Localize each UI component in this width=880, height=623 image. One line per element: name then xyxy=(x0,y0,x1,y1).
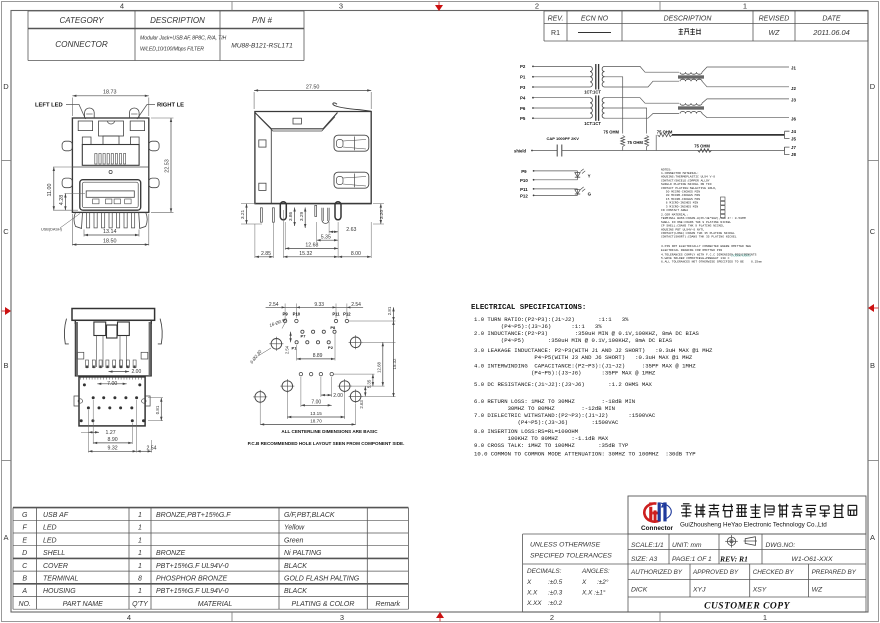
svg-text:P4~P5(WITH J3 AND J6 SHORT): P4~P5(WITH J3 AND J6 SHORT) :0.3uH MAX @… xyxy=(474,354,693,361)
svg-text:2: 2 xyxy=(535,2,539,11)
svg-text:NOTES:: NOTES: xyxy=(661,168,672,171)
svg-text:P9: P9 xyxy=(283,311,289,316)
svg-text:6-Ø2.30: 6-Ø2.30 xyxy=(249,349,263,365)
svg-text:(P4~P5):(J3~J6) :1:1 3%: (P4~P5):(J3~J6) :1:1 3% xyxy=(474,323,602,330)
svg-text:P3: P3 xyxy=(520,85,526,90)
svg-text:W/LED,10/100/Mbps FILTER: W/LED,10/100/Mbps FILTER xyxy=(140,47,204,53)
svg-text:9.33: 9.33 xyxy=(314,302,324,308)
svg-text:1: 1 xyxy=(763,613,767,622)
svg-text::±0.5: :±0.5 xyxy=(548,579,563,586)
svg-text:7.00: 7.00 xyxy=(311,399,321,405)
svg-text:X.X: X.X xyxy=(526,590,538,597)
svg-text::±0.3: :±0.3 xyxy=(548,590,563,597)
svg-text:G: G xyxy=(22,512,28,519)
svg-text:18.73: 18.73 xyxy=(103,90,117,96)
svg-text:2.54: 2.54 xyxy=(269,302,279,308)
svg-text:2011.06.04: 2011.06.04 xyxy=(812,28,849,37)
svg-text:16-Ø0.90: 16-Ø0.90 xyxy=(269,317,288,328)
svg-text:J1: J1 xyxy=(791,66,796,71)
svg-text:COVER: COVER xyxy=(43,563,68,570)
svg-text:CONTACT PLATING:SELECTIVE GOLD: CONTACT PLATING:SELECTIVE GOLD, xyxy=(661,187,717,190)
svg-text:D: D xyxy=(22,550,27,557)
svg-text:ANGLES:: ANGLES: xyxy=(581,568,610,575)
svg-text:8.89: 8.89 xyxy=(313,353,323,359)
svg-text:P9: P9 xyxy=(521,169,527,174)
svg-text:Y: Y xyxy=(588,174,591,179)
svg-text:2: 2 xyxy=(550,613,554,622)
svg-text:SHELL IN ONE:COANS THK 9 PLATI: SHELL IN ONE:COANS THK 9 PLATING NICKEL xyxy=(661,221,731,224)
svg-text:R1: R1 xyxy=(551,30,560,37)
svg-text:IN CONTACT AREA: IN CONTACT AREA xyxy=(661,209,688,212)
svg-text:3.20: 3.20 xyxy=(379,210,385,220)
svg-text:12.68: 12.68 xyxy=(305,243,318,249)
svg-text:ELECTRICAL SPECIFICATIONS:: ELECTRICAL SPECIFICATIONS: xyxy=(471,304,586,312)
svg-text:13.15: 13.15 xyxy=(310,411,322,416)
svg-text:9.32: 9.32 xyxy=(108,445,118,451)
svg-text:1.0 TURN RATIO:(P2~P3):(J1~J2): 1.0 TURN RATIO:(P2~P3):(J1~J2) :1:1 3% xyxy=(474,316,629,323)
svg-text:CAP 1000PF 2KV: CAP 1000PF 2KV xyxy=(547,136,580,141)
svg-text:12.68: 12.68 xyxy=(377,361,382,373)
svg-text:B: B xyxy=(22,576,27,583)
svg-text:P2: P2 xyxy=(520,64,526,69)
svg-text:USB(DASH): USB(DASH) xyxy=(41,228,63,232)
svg-text:J3: J3 xyxy=(791,98,796,103)
svg-text:P10: P10 xyxy=(520,178,528,183)
svg-text:SHIELD PLATING:NICKEL ON TIN: SHIELD PLATING:NICKEL ON TIN xyxy=(661,183,712,186)
svg-text:PHOSPHOR BRONZE: PHOSPHOR BRONZE xyxy=(156,576,228,583)
svg-text:CATEGORY: CATEGORY xyxy=(59,16,104,25)
svg-text:B: B xyxy=(870,361,875,370)
svg-text:1CT:1CT: 1CT:1CT xyxy=(584,121,601,126)
svg-text:3.0 LEAKAGE INDUCTANCE: P2~P3(: 3.0 LEAKAGE INDUCTANCE: P2~P3(WITH J1 AN… xyxy=(474,347,713,354)
svg-text:4: 4 xyxy=(120,2,124,11)
svg-text:75 OHM: 75 OHM xyxy=(694,144,710,149)
svg-text:P11: P11 xyxy=(520,187,528,192)
svg-text:BRONZE,PBT+15%G.F: BRONZE,PBT+15%G.F xyxy=(156,512,231,519)
svg-text:LEFT LED: LEFT LED xyxy=(35,103,63,109)
svg-text:75 OHM: 75 OHM xyxy=(627,140,643,145)
svg-text:Connector: Connector xyxy=(641,525,673,532)
svg-text:WZ: WZ xyxy=(812,587,823,594)
svg-text:APPROVED BY: APPROVED BY xyxy=(692,569,739,576)
svg-text:2.54: 2.54 xyxy=(351,302,361,308)
svg-text:J8: J8 xyxy=(791,152,796,157)
svg-text:PBT+15%G.F UL94V-0: PBT+15%G.F UL94V-0 xyxy=(156,563,229,570)
svg-text:4.28: 4.28 xyxy=(59,195,65,206)
svg-text:1: 1 xyxy=(138,525,142,532)
svg-text:HOUSING PBT UL94V-0 NYTL: HOUSING PBT UL94V-0 NYTL xyxy=(661,228,704,231)
svg-text:X: X xyxy=(526,579,532,586)
svg-text:DECIMALS:: DECIMALS: xyxy=(527,568,562,575)
svg-text:P12: P12 xyxy=(343,311,351,316)
svg-text:LED: LED xyxy=(43,525,57,532)
svg-text:5.35: 5.35 xyxy=(321,234,331,240)
svg-text:18.50: 18.50 xyxy=(103,238,117,244)
svg-text:50 MICRO-INCHES MIN: 50 MICRO-INCHES MIN xyxy=(666,191,700,194)
svg-text:2.63: 2.63 xyxy=(346,227,356,233)
svg-text:Ni PALTING: Ni PALTING xyxy=(284,550,322,557)
svg-text:P5: P5 xyxy=(520,116,526,121)
svg-text:J4: J4 xyxy=(791,129,796,134)
svg-text:2.COR MATERIAL:: 2.COR MATERIAL: xyxy=(661,214,688,217)
svg-text:4.0 INTERWINDING CAPACITANCE:: 4.0 INTERWINDING CAPACITANCE:(P2~P3):(J1… xyxy=(474,363,696,370)
svg-text:1: 1 xyxy=(138,512,142,519)
svg-text:MU88-B121-RSL1T1: MU88-B121-RSL1T1 xyxy=(231,43,293,50)
svg-text:1: 1 xyxy=(743,2,747,11)
svg-text:J6: J6 xyxy=(791,117,796,122)
svg-text:D: D xyxy=(3,82,9,91)
svg-text:C: C xyxy=(3,227,9,236)
svg-text:P10: P10 xyxy=(293,311,301,316)
svg-text:DESCRIPTION: DESCRIPTION xyxy=(664,16,713,23)
svg-text:2.00: 2.00 xyxy=(132,369,142,375)
svg-text:B: B xyxy=(3,361,8,370)
svg-text:GOLD FLASH PALTING: GOLD FLASH PALTING xyxy=(284,576,360,583)
svg-text:F: F xyxy=(23,525,28,532)
svg-text:8.90: 8.90 xyxy=(108,437,118,443)
svg-text:6.ALL TOLERANCES NOT OTHERWISE: 6.ALL TOLERANCES NOT OTHERWISE SPECIFIED… xyxy=(661,261,762,264)
svg-text:BLACK: BLACK xyxy=(284,563,307,570)
svg-text:G: G xyxy=(588,192,592,197)
svg-text:1: 1 xyxy=(138,537,142,544)
svg-text:SPECIFED TOLERANCES: SPECIFED TOLERANCES xyxy=(530,553,612,560)
svg-text:13.14: 13.14 xyxy=(103,229,117,235)
svg-text:1.27: 1.27 xyxy=(106,430,116,436)
svg-text:UNIT: mm: UNIT: mm xyxy=(672,542,702,549)
svg-text:P4: P4 xyxy=(520,96,526,101)
svg-text:TERMINAL: TERMINAL xyxy=(43,576,79,583)
svg-text:Green: Green xyxy=(284,537,304,544)
svg-text:22.53: 22.53 xyxy=(164,159,170,173)
svg-text:J7: J7 xyxy=(791,145,796,150)
svg-text:SIZE: A3: SIZE: A3 xyxy=(631,556,657,563)
svg-text:BRONZE: BRONZE xyxy=(156,550,186,557)
svg-text:(P4~P5):(J3~J6) :1500VAC: (P4~P5):(J3~J6) :1500VAC xyxy=(474,419,619,426)
svg-text:NO.: NO. xyxy=(18,601,31,608)
svg-text:P8: P8 xyxy=(330,325,336,330)
svg-text:A: A xyxy=(870,533,875,542)
svg-text:8.0 INSERTION LOSS:RS=RL=100OH: 8.0 INSERTION LOSS:RS=RL=100OHM xyxy=(474,428,578,435)
svg-text:CONNECTOR: CONNECTOR xyxy=(55,40,108,49)
svg-text:Yellow: Yellow xyxy=(284,525,305,532)
svg-text:DWG.NO:: DWG.NO: xyxy=(766,542,796,549)
svg-text:3.21: 3.21 xyxy=(240,210,246,220)
svg-text:3.86: 3.86 xyxy=(288,212,294,222)
svg-text:C: C xyxy=(22,563,28,570)
svg-text:CHECKED BY: CHECKED BY xyxy=(753,569,795,576)
svg-text:2.00: 2.00 xyxy=(333,393,343,399)
svg-text:RIGHT LE: RIGHT LE xyxy=(157,103,184,109)
svg-text:CONTACT(SHORT):COANS THK 35 PL: CONTACT(SHORT):COANS THK 35 PLATING NICK… xyxy=(661,235,737,239)
svg-text:1.CONNECTOR MATERIAL:: 1.CONNECTOR MATERIAL: xyxy=(661,172,699,175)
svg-text:XSY: XSY xyxy=(752,587,767,594)
svg-text:Modular Jack+USB AF, 8P8C, R/A: Modular Jack+USB AF, 8P8C, R/A, T/H xyxy=(140,36,227,42)
svg-text:J5: J5 xyxy=(791,136,796,141)
svg-text:9.0 CROSS TALK: 1MHZ TO 100MHZ: 9.0 CROSS TALK: 1MHZ TO 100MHZ :35dB TYP xyxy=(474,442,629,449)
svg-text:0.81: 0.81 xyxy=(155,405,160,414)
svg-text:ALL CENTERLINE DIMENSIONS ARE: ALL CENTERLINE DIMENSIONS ARE BASIC xyxy=(281,429,378,434)
svg-text:C: C xyxy=(870,227,876,236)
svg-text:P11: P11 xyxy=(332,311,340,316)
svg-text:2.81: 2.81 xyxy=(387,306,392,315)
svg-text:ECN NO: ECN NO xyxy=(581,16,609,23)
svg-text:W1-O61-XXX: W1-O61-XXX xyxy=(791,556,833,563)
svg-text:DATE: DATE xyxy=(822,16,840,23)
svg-text:P7: P7 xyxy=(301,333,307,338)
svg-text:Remark: Remark xyxy=(376,601,401,608)
svg-text:8: 8 xyxy=(138,576,142,583)
svg-text:REV: R1: REV: R1 xyxy=(719,555,748,564)
svg-text:P2: P2 xyxy=(328,345,334,350)
svg-text:CP SHELL:COANS THK 9 PLATING N: CP SHELL:COANS THK 9 PLATING NICKEL xyxy=(661,225,724,228)
svg-text:CUSTOMER COPY: CUSTOMER COPY xyxy=(704,602,790,612)
svg-text:PART NAME: PART NAME xyxy=(63,601,104,608)
svg-text:A: A xyxy=(21,588,27,595)
svg-text:BLACK: BLACK xyxy=(284,588,307,595)
svg-text:2.63: 2.63 xyxy=(359,400,364,409)
svg-text:CONTACT/SHIELD:COPPER ALLOY: CONTACT/SHIELD:COPPER ALLOY xyxy=(661,178,710,182)
svg-text:10.0 COMMON TO COMMON MODE ATT: 10.0 COMMON TO COMMON MODE ATTENUATION: … xyxy=(474,451,696,458)
svg-text:UNLESS OTHERWISE: UNLESS OTHERWISE xyxy=(530,542,601,549)
svg-text:shield: shield xyxy=(514,148,527,153)
svg-text:P6: P6 xyxy=(520,106,526,111)
svg-text:USB AF: USB AF xyxy=(43,512,69,519)
svg-text:6 MICRO-INCHES MIN: 6 MICRO-INCHES MIN xyxy=(666,202,699,205)
svg-text:1: 1 xyxy=(138,550,142,557)
svg-text:100KHZ TO 80MHZ :-1.1dB MAX: 100KHZ TO 80MHZ :-1.1dB MAX xyxy=(474,435,609,442)
svg-text:5.0 DC RESISTANCE:(J1~J2):(J3~: 5.0 DC RESISTANCE:(J1~J2):(J3~J6) :1.2 O… xyxy=(474,381,653,388)
svg-text:PBT+15%G.F UL94V-0: PBT+15%G.F UL94V-0 xyxy=(156,588,229,595)
svg-text:J2: J2 xyxy=(791,86,796,91)
svg-text:(P4~P5):(J3~J6) :35PF MAX: (P4~P5):(J3~J6) :35PF MAX @ 1MHZ xyxy=(474,370,656,377)
svg-text:CONTACT(LONG):COANS THK 35 PLA: CONTACT(LONG):COANS THK 35 PLATING NICKE… xyxy=(661,231,735,235)
svg-text:1CT:1CT: 1CT:1CT xyxy=(584,90,601,95)
svg-text:DESCRIPTION: DESCRIPTION xyxy=(150,16,205,25)
svg-text:11.00: 11.00 xyxy=(47,183,53,196)
svg-text:1: 1 xyxy=(138,563,142,570)
svg-text:AUTHORIZED BY: AUTHORIZED BY xyxy=(630,569,683,576)
svg-text:REV.: REV. xyxy=(548,16,564,23)
svg-text:SHELL: SHELL xyxy=(43,550,65,557)
svg-text:GuiZhousheng HeYao Electronic: GuiZhousheng HeYao Electronic Technology… xyxy=(680,522,827,529)
svg-text:LED: LED xyxy=(43,537,57,544)
svg-text:1: 1 xyxy=(138,588,142,595)
svg-text:XYJ: XYJ xyxy=(692,587,706,594)
svg-text:X: X xyxy=(581,579,587,586)
svg-text:DICK: DICK xyxy=(631,587,648,594)
svg-text:(XXXX/XXXX): (XXXX/XXXX) xyxy=(731,253,751,257)
svg-text:SCALE:1/1: SCALE:1/1 xyxy=(631,542,664,549)
svg-text:WZ: WZ xyxy=(769,30,781,37)
svg-text:PREPARED BY: PREPARED BY xyxy=(812,569,857,576)
svg-text:75 OHM: 75 OHM xyxy=(603,130,619,135)
svg-text:5.WAVE SOLDER COMPATIBLE+PREHE: 5.WAVE SOLDER COMPATIBLE+PREHEAT 130 C xyxy=(661,257,730,260)
svg-text:8.00: 8.00 xyxy=(351,251,361,257)
svg-text:TERMINAL BUSS:COANS-H(PC/4E*SH: TERMINAL BUSS:COANS-H(PC/4E*SHZ),THK Z!:… xyxy=(661,216,746,220)
svg-text:PAGE:1 OF 1: PAGE:1 OF 1 xyxy=(672,556,712,563)
svg-text:3: 3 xyxy=(339,2,343,11)
svg-text:30MHZ TO 80MHZ :-12dB M: 30MHZ TO 80MHZ :-12dB MIN xyxy=(474,405,615,412)
svg-text:ELECTRICAL DRAWING FOR OMITTED: ELECTRICAL DRAWING FOR OMITTED PIN xyxy=(661,249,722,252)
svg-text:15 MICRO-INCHES MIN: 15 MICRO-INCHES MIN xyxy=(666,198,700,201)
svg-text:Q'TY: Q'TY xyxy=(132,601,149,608)
svg-text:5.35: 5.35 xyxy=(367,379,372,388)
svg-text:15.32: 15.32 xyxy=(392,358,397,370)
svg-text:2.54: 2.54 xyxy=(284,345,289,354)
svg-text::±0.2: :±0.2 xyxy=(548,600,563,607)
svg-text:4: 4 xyxy=(127,613,131,622)
svg-text:A: A xyxy=(3,533,8,542)
svg-text:G/F,PBT,BLACK: G/F,PBT,BLACK xyxy=(284,512,335,519)
svg-text::±2°: :±2° xyxy=(597,578,609,586)
svg-text:3: 3 xyxy=(340,613,344,622)
svg-text:3.29: 3.29 xyxy=(299,212,305,222)
svg-text:P.C.B RECOMMENDED HOLE LAYOUT: P.C.B RECOMMENDED HOLE LAYOUT SEEN FROM … xyxy=(248,441,405,446)
svg-text:REVISED: REVISED xyxy=(759,16,790,23)
svg-text:X.X :±1°: X.X :±1° xyxy=(581,589,606,597)
svg-text:6.0 RETURN LOSS: 1MHZ TO 30MHZ: 6.0 RETURN LOSS: 1MHZ TO 30MHZ :-18dB MI… xyxy=(474,398,635,405)
svg-text:D: D xyxy=(870,82,876,91)
svg-text:30 MICRO-INCHES MIN: 30 MICRO-INCHES MIN xyxy=(666,194,700,197)
svg-text:X.XX: X.XX xyxy=(526,600,542,607)
svg-text:15.32: 15.32 xyxy=(299,251,312,257)
svg-text:18.70: 18.70 xyxy=(310,419,322,424)
svg-text:3.PIN NOT ELECTRICALLY CONNECT: 3.PIN NOT ELECTRICALLY CONNECTED WHERE O… xyxy=(661,245,751,248)
svg-text:PLATING & COLOR: PLATING & COLOR xyxy=(292,601,355,608)
svg-text:P1: P1 xyxy=(520,75,526,80)
svg-text:P/N #: P/N # xyxy=(252,16,273,25)
svg-text:MATERIAL: MATERIAL xyxy=(198,601,233,608)
svg-text:7.0 DIELECTRIC WITHSTAND:(P2~P: 7.0 DIELECTRIC WITHSTAND:(P2~P3):(J1~J2)… xyxy=(474,412,656,419)
svg-text:E: E xyxy=(22,537,27,544)
svg-text:3 MICRO-INCHES MIN: 3 MICRO-INCHES MIN xyxy=(666,205,699,208)
svg-text:HOUSING: HOUSING xyxy=(43,588,76,595)
svg-text:(P4~P5) :350uH MIN @ 0.1: (P4~P5) :350uH MIN @ 0.1V,100KHZ, 8mA DC… xyxy=(474,337,673,344)
svg-text:HOUSING:THERMOPLASTIC UL94 V-0: HOUSING:THERMOPLASTIC UL94 V-0 xyxy=(661,176,715,179)
svg-text:27.50: 27.50 xyxy=(306,85,320,91)
svg-text:P12: P12 xyxy=(520,193,528,198)
